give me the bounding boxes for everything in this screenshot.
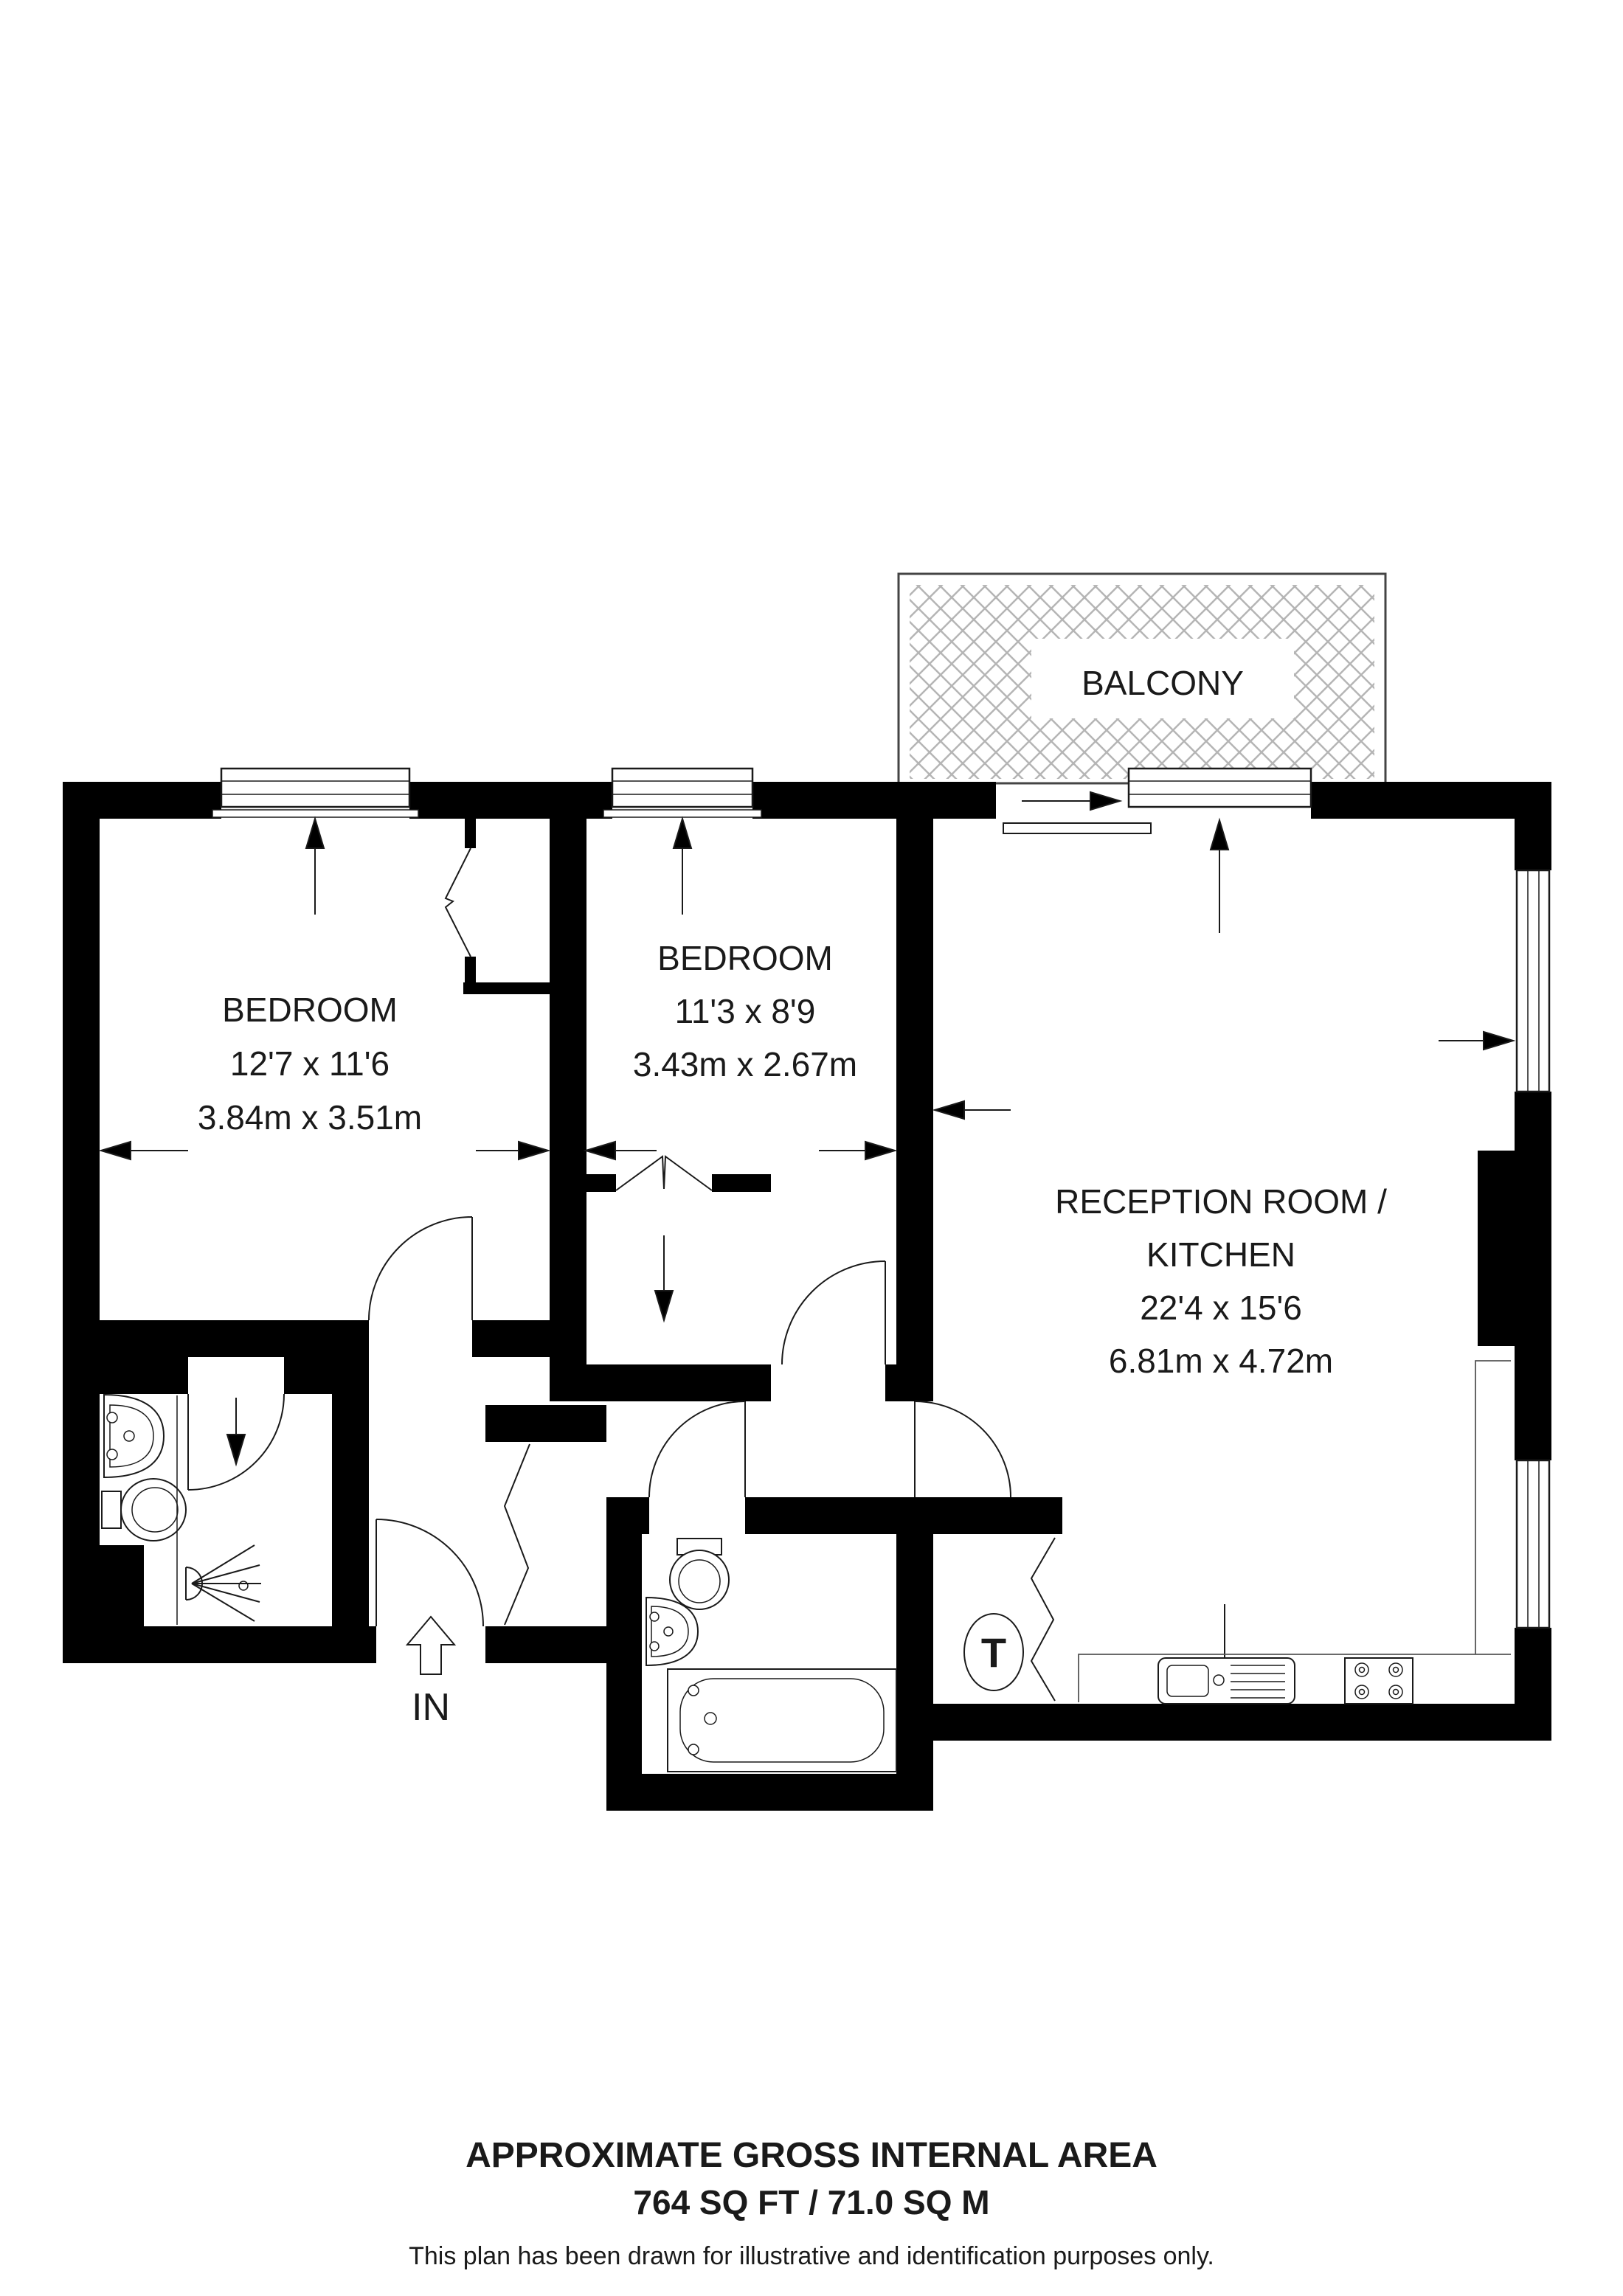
reception-imperial: 22'4 x 15'6 [1140,1289,1302,1327]
entrance-arrow-icon [407,1617,454,1674]
wall-bed1-south-left [100,1320,369,1357]
wall-bottom-hall [485,1626,606,1663]
window-bedroom1 [212,769,418,817]
arrow-up-window1 [306,819,324,915]
wall-wardrobe-stub-right [712,1174,771,1192]
wall-bed2-south-left [586,1364,771,1401]
wall-bath2-bottom [606,1774,933,1811]
wall-bath1-top-left [100,1357,188,1394]
reception-label: RECEPTION ROOM / KITCHEN 22'4 x 15'6 6.8… [1055,1182,1387,1380]
wardrobe-doors-bedroom2 [616,1156,712,1190]
dimension-arrows [101,792,1513,1690]
kitchen-sink-icon [1158,1658,1295,1704]
bedroom1-metric: 3.84m x 3.51m [198,1098,422,1137]
window-reception-lower [1517,1460,1549,1628]
wall-left [63,782,100,1663]
wall-shower-chunk [100,1545,144,1626]
wall-bedroom-divider [550,819,586,1401]
arrow-left-bedroom2 [586,1142,657,1159]
tank-cupboard-bifold [1031,1538,1055,1701]
bedroom2-name: BEDROOM [657,939,833,977]
bedroom1-label: BEDROOM 12'7 x 11'6 3.84m x 3.51m [198,991,422,1137]
wall-top-2 [409,782,612,819]
footer-title: APPROXIMATE GROSS INTERNAL AREA [466,2136,1157,2175]
wall-wardrobe-stub-left [586,1174,616,1192]
bedroom1-imperial: 12'7 x 11'6 [230,1044,390,1083]
entrance-label: IN [412,1686,450,1729]
wall-bath2-left [606,1497,642,1811]
wall-bottom-left [63,1626,376,1663]
arrow-right-bedroom2 [819,1142,895,1159]
bathroom1-sink-icon [104,1395,164,1477]
wall-tank-nook-top [933,1497,1062,1534]
arrow-down-wardrobe [655,1235,673,1320]
hall-cupboard-bifold [505,1444,530,1625]
floorplan-canvas: BALCONY [0,0,1623,2296]
wall-right-pillar [1478,1151,1515,1346]
footer-area: 764 SQ FT / 71.0 SQ M [633,2183,989,2222]
bedroom1-name: BEDROOM [222,991,398,1029]
door-bedroom1 [369,1217,472,1320]
window-reception-upper [1517,870,1549,1092]
door-bathroom2 [649,1401,745,1497]
bathroom1-toilet-icon [102,1479,186,1541]
door-reception [915,1401,1011,1497]
floorplan-page: BALCONY [0,0,1623,2296]
wall-closet-stub-top [465,819,476,848]
reception-name-line2: KITCHEN [1146,1235,1295,1274]
wall-right-2 [1515,1092,1551,1460]
bedroom2-label: BEDROOM 11'3 x 8'9 3.43m x 2.67m [633,939,857,1083]
kitchen-counter [1079,1361,1511,1702]
arrow-up-window2 [674,819,691,915]
door-entrance [376,1519,483,1626]
balcony-label: BALCONY [1082,664,1244,702]
hob-icon [1345,1658,1413,1704]
arrow-up-balcony-window [1211,820,1228,933]
wall-bed2-reception [896,819,933,1401]
wall-cupboard-top [485,1405,606,1442]
wall-bath2-top-left [606,1497,649,1534]
door-bedroom2 [782,1261,885,1364]
arrow-right-balcony-door [1022,792,1120,810]
arrow-right-bedroom1 [476,1142,548,1159]
wall-right-1 [1515,782,1551,870]
balcony: BALCONY [899,574,1385,783]
tank-label: T [981,1629,1006,1676]
closet-bifold-bedroom1 [446,848,471,957]
footer: APPROXIMATE GROSS INTERNAL AREA 764 SQ F… [409,2136,1214,2270]
window-bedroom2 [603,769,761,817]
wall-closet-south [463,982,552,994]
arrow-right-reception [1439,1032,1513,1050]
arrow-down-bathroom1 [227,1398,245,1464]
wall-closet-stub-bottom [465,957,476,985]
reception-metric: 6.81m x 4.72m [1109,1342,1333,1380]
arrow-left-bedroom1 [101,1142,188,1159]
wall-reception-west-lower [896,1497,933,1811]
wall-bath1-right [332,1357,369,1663]
wall-bath2-top-right [745,1497,896,1534]
arrow-left-reception [935,1101,1011,1119]
wall-kitchen-bottom [933,1704,1551,1741]
bathroom2-toilet-icon [670,1539,729,1609]
footer-disclaimer: This plan has been drawn for illustrativ… [409,2242,1214,2270]
reception-name-line1: RECEPTION ROOM / [1055,1182,1387,1221]
bedroom2-imperial: 11'3 x 8'9 [675,992,816,1030]
bedroom2-metric: 3.43m x 2.67m [633,1045,857,1083]
bathroom1-shower-icon [177,1395,261,1625]
bathtub-icon [668,1669,896,1772]
wall-top-3 [752,782,996,819]
wall-bed1-south-right [472,1320,550,1357]
